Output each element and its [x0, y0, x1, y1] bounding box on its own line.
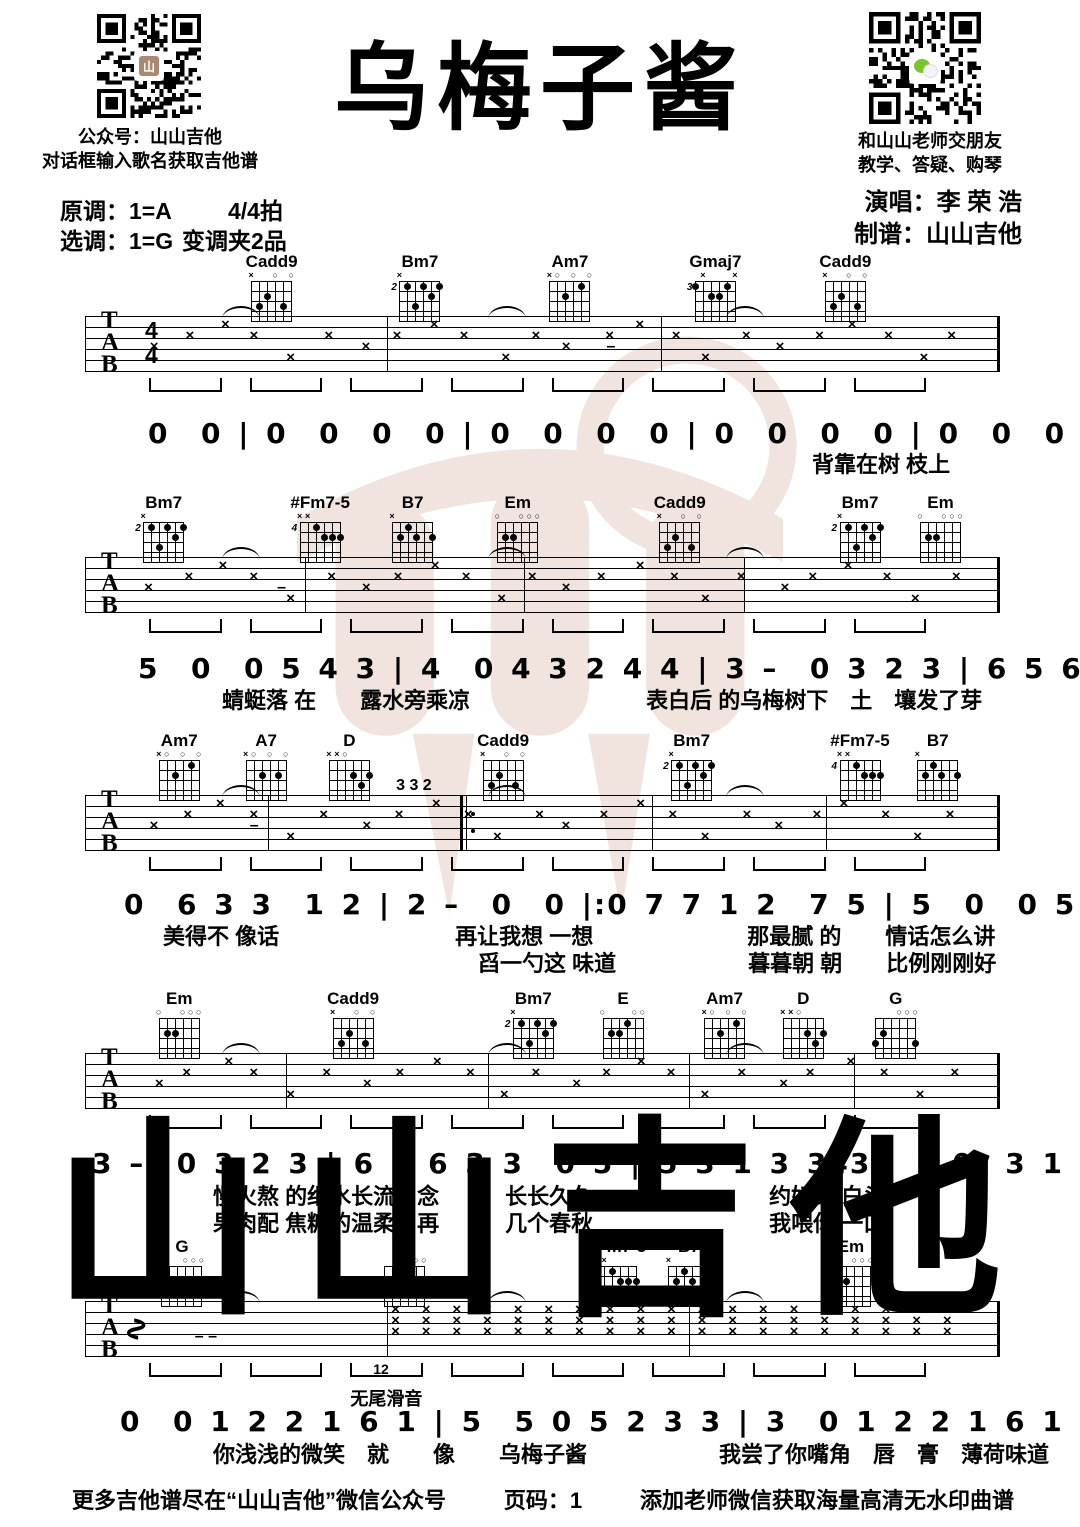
barline	[744, 557, 745, 613]
chord-diagram: Em○○○○	[488, 495, 548, 563]
tab-clef-letters: TAB	[101, 311, 119, 375]
finger-dot	[164, 1030, 171, 1037]
chord-name: Bm7	[390, 254, 450, 270]
finger-dot	[337, 534, 344, 541]
barline	[652, 795, 653, 851]
beam-group	[552, 1115, 625, 1129]
finger-dot	[912, 1040, 919, 1047]
string-marker: ○	[794, 1008, 804, 1017]
string-marker: ○	[552, 271, 562, 280]
chord-name: D	[773, 991, 833, 1007]
finger-dot	[716, 293, 723, 300]
footer-page-number: 页码：1	[504, 1483, 582, 1515]
chord-grid: ×2	[840, 522, 881, 563]
tab-x-note: ×	[514, 1328, 523, 1336]
chord-grid: ××○	[783, 1018, 824, 1059]
chord-name: Em	[911, 495, 971, 511]
chord-diagram: B7×	[659, 1239, 719, 1307]
tab-x-note: ×	[806, 1069, 815, 1077]
tab-x-note: ×	[561, 822, 570, 830]
chord-name: Cadd9	[242, 254, 302, 270]
staff-line	[85, 338, 1000, 339]
finger-dot	[429, 534, 436, 541]
tab-x-note: ×	[912, 1328, 921, 1336]
chord-diagram: B7×	[908, 733, 968, 801]
tab-x-note: ×	[947, 332, 956, 340]
chord-grid: ×○○	[483, 760, 524, 801]
finger-dot	[172, 772, 179, 779]
meta-original-key: 原调：1=A	[60, 192, 172, 226]
tab-x-note: ×	[668, 811, 677, 819]
finger-dot	[861, 524, 868, 531]
tab-staff: TAB××××××××××××××××××××××××	[85, 1053, 1000, 1108]
meta-capo: 变调夹2品	[182, 222, 287, 256]
chord-diagram: G○○○	[866, 991, 926, 1059]
tab-x-note: ×	[780, 584, 789, 592]
string-marker: ○	[678, 512, 688, 521]
annotation: –	[607, 338, 616, 356]
string-marker: ○	[638, 1008, 648, 1017]
beam-group	[854, 619, 927, 633]
tab-x-note: ×	[393, 332, 402, 340]
tab-x-note: ×	[249, 332, 258, 340]
chord-name: Am7	[695, 991, 755, 1007]
beam-group	[350, 619, 423, 633]
finger-dot	[705, 1278, 712, 1285]
beam-group	[652, 857, 725, 871]
tab-x-note: ×	[464, 811, 473, 819]
staff-line	[85, 371, 1000, 372]
tab-staff: TAB××××××××××××××××××××××××	[85, 795, 1000, 850]
string-marker: ×	[387, 512, 397, 521]
chord-diagram: Am7×○○○	[540, 254, 600, 322]
string-marker: ×	[912, 750, 922, 759]
string-marker: ×	[666, 750, 676, 759]
tab-x-note: ×	[532, 1069, 541, 1077]
staff-line	[85, 850, 1000, 851]
chord-diagram: Cadd9×○○	[473, 733, 533, 801]
melody-numbers-line: 0 0 | 0 0 0 0 | 0 0 0 0 | 0 0 0 0 | 0 0 …	[148, 420, 1080, 448]
string-marker: ○	[194, 1008, 204, 1017]
string-marker: ○	[502, 750, 512, 759]
chord-diagram: D××○	[773, 991, 833, 1059]
beam-group	[149, 1363, 222, 1377]
chord-diagram: Cadd9×○○	[242, 254, 302, 322]
tab-x-note: ×	[327, 573, 336, 581]
staff-line	[85, 1345, 1000, 1346]
staff-line	[85, 1097, 1000, 1098]
finger-dot	[869, 772, 876, 779]
chord-name: B7	[908, 733, 968, 749]
chord-grid: ×2	[513, 1018, 554, 1059]
string-marker: ○	[249, 750, 259, 759]
meta-play-key: 选调：1=G	[60, 222, 173, 256]
qr-right-caption-2: 教学、答疑、购琴	[820, 154, 1040, 176]
finger-dot	[861, 772, 868, 779]
string-marker: ○	[568, 271, 578, 280]
tab-x-note: ×	[946, 811, 955, 819]
base-fret-label: 2	[663, 761, 669, 772]
tab-x-note: ×	[562, 343, 571, 351]
tab-x-note: ×	[880, 1069, 889, 1077]
beam-group	[753, 1115, 826, 1129]
tab-clef-letters: TAB	[101, 790, 119, 854]
chord-diagram: Bm7×2	[134, 495, 194, 563]
chord-grid: ×2	[671, 760, 712, 801]
lyrics-line: 慢火熬 的细水长流 念 长长久久 约好到 白头	[213, 1186, 885, 1208]
chord-grid: ×○○	[333, 1018, 374, 1059]
string-marker: ×	[599, 1256, 609, 1265]
tab-x-note: ×	[182, 1069, 191, 1077]
finger-dot	[346, 1030, 353, 1037]
tab-clef-letters: TAB	[101, 1048, 119, 1112]
tab-x-note: ×	[737, 1069, 746, 1077]
tab-x-note: ×	[562, 584, 571, 592]
tab-x-note: ×	[636, 1328, 645, 1336]
tab-x-note: ×	[737, 573, 746, 581]
finger-dot	[830, 303, 837, 310]
string-marker: ○	[419, 1256, 429, 1265]
chord-diagram: Cadd9×○○	[650, 495, 710, 563]
footer-left-text: 更多吉他谱尽在“山山吉他”微信公众号	[72, 1483, 446, 1515]
tab-x-note: ×	[575, 1328, 584, 1336]
string-marker: ○	[286, 271, 296, 280]
staff-line	[85, 1108, 1000, 1109]
tab-x-note: ×	[698, 1328, 707, 1336]
tab-x-note: ×	[466, 1069, 475, 1077]
string-marker: ○	[694, 512, 704, 521]
barline	[85, 316, 86, 372]
chord-grid: ○○○○	[920, 522, 961, 563]
finger-dot	[954, 772, 961, 779]
lyrics-line: 背靠在树 枝上	[812, 454, 950, 476]
staff-line	[85, 1064, 1000, 1065]
staff-line	[85, 828, 1000, 829]
finger-dot	[512, 782, 519, 789]
chord-grid: ×	[668, 1266, 709, 1307]
tab-x-note: ×	[774, 822, 783, 830]
annotation: 无尾滑音	[350, 1385, 422, 1411]
string-marker: ○	[598, 1008, 608, 1017]
melody-numbers-line: 0 6 3 3 1 2 | 2 – 0 0 |:0 7 7 1 2 7 5 | …	[124, 891, 1080, 919]
beam-group	[753, 1363, 826, 1377]
chord-name: G	[866, 991, 926, 1007]
barline	[268, 795, 269, 851]
finger-dot	[608, 1030, 615, 1037]
finger-dot	[812, 1040, 819, 1047]
beam-group	[250, 1363, 323, 1377]
finger-dot	[275, 772, 282, 779]
tab-x-note: ×	[432, 800, 441, 808]
string-marker: ○	[707, 1008, 717, 1017]
beam-group	[250, 1115, 323, 1129]
tab-x-note: ×	[483, 1328, 492, 1336]
tab-x-note: ×	[743, 811, 752, 819]
chord-grid: ○○○○	[159, 1018, 200, 1059]
beam-group	[753, 378, 826, 392]
staff-line	[85, 579, 1000, 580]
string-marker: ○	[865, 1256, 875, 1265]
string-marker: ○	[154, 1008, 164, 1017]
finger-dot	[389, 1278, 396, 1285]
chord-grid: ×○○	[251, 281, 292, 322]
tab-x-note: ×	[452, 1328, 461, 1336]
finger-dot	[198, 1288, 205, 1295]
tab-x-note: ×	[249, 573, 258, 581]
tab-x-note: ×	[882, 1328, 891, 1336]
chord-name: B7	[383, 495, 443, 511]
tab-x-note: ×	[362, 822, 371, 830]
staff-line	[85, 349, 1000, 350]
tab-x-note: ×	[637, 1058, 646, 1066]
barline	[305, 557, 306, 613]
chord-diagram: Cadd9×○○	[323, 991, 383, 1059]
tab-x-note: ×	[535, 811, 544, 819]
base-fret-label: 4	[292, 523, 298, 534]
tab-x-note: ×	[916, 1091, 925, 1099]
tab-x-note: ×	[606, 1328, 615, 1336]
chord-name: Em	[488, 495, 548, 511]
beam-group	[854, 378, 927, 392]
finger-dot	[338, 1040, 345, 1047]
tab-x-note: ×	[221, 321, 230, 329]
string-marker: ○	[584, 271, 594, 280]
tab-x-note: ×	[820, 1328, 829, 1336]
barline	[85, 795, 86, 851]
chord-diagram: G○○○	[374, 1239, 434, 1307]
lyrics-line: 果肉配 焦糖的温柔 再 几个春秋 我喂你 一口	[213, 1213, 885, 1235]
finger-dot	[925, 534, 932, 541]
tab-x-note: ×	[701, 1091, 710, 1099]
tab-x-note: ×	[422, 1328, 431, 1336]
tab-x-note: ×	[391, 1328, 400, 1336]
string-marker: ○	[194, 750, 204, 759]
tab-x-note: ×	[224, 1058, 233, 1066]
tab-x-note: ×	[848, 321, 857, 329]
finger-dot	[313, 524, 320, 531]
finger-dot	[350, 772, 357, 779]
string-marker: ○	[162, 750, 172, 759]
string-marker: ○	[825, 1256, 835, 1265]
chord-grid: ××4	[840, 760, 881, 801]
finger-dot	[436, 283, 443, 290]
chord-diagram: G○○○	[152, 1239, 212, 1307]
tab-x-note: ×	[493, 833, 502, 841]
staff-line	[85, 1334, 1000, 1335]
melody-numbers-line: 0 0 1 2 2 1 6 1 | 5 5 0 5 2 3 3 | 3 0 1 …	[120, 1408, 1080, 1436]
beam-group	[250, 378, 323, 392]
chord-name: Bm7	[662, 733, 722, 749]
meta-time-signature: 4/4拍	[228, 192, 283, 226]
string-marker: ×	[654, 512, 664, 521]
beam-group	[250, 857, 323, 871]
repeat-barline-thin	[466, 795, 467, 851]
chord-name: E	[593, 991, 653, 1007]
tab-x-note: ×	[544, 1328, 553, 1336]
finger-dot	[724, 283, 731, 290]
tab-staff: TAB××××××××××××××××××××××××	[85, 557, 1000, 612]
base-fret-label: 2	[135, 523, 141, 534]
chord-diagram: Em○○○○	[911, 495, 971, 563]
footer-right-text: 添加老师微信获取海量高清无水印曲谱	[640, 1483, 1014, 1515]
tab-x-note: ×	[846, 1058, 855, 1066]
chord-grid: ○○○	[161, 1266, 202, 1307]
beam-group	[451, 1363, 524, 1377]
chord-grid: ○○○○	[497, 522, 538, 563]
tab-x-note: ×	[362, 584, 371, 592]
beam-group	[652, 378, 725, 392]
melody-numbers-line: 5 0 0 5 4 3 | 4 0 4 3 2 4 4 | 3 – 0 3 2 …	[138, 655, 1080, 683]
chord-name: Em	[149, 991, 209, 1007]
string-marker: ×	[730, 271, 740, 280]
tab-x-note: ×	[884, 332, 893, 340]
chord-name: #Fm7-5	[290, 495, 350, 511]
tab-x-note: ×	[701, 833, 710, 841]
slur-arc	[222, 1043, 260, 1056]
chord-name: G	[152, 1239, 212, 1255]
string-marker: ○	[723, 1008, 733, 1017]
beam-group	[350, 1115, 423, 1129]
chord-diagram: Am7×○○○	[695, 991, 755, 1059]
staff-line	[85, 360, 1000, 361]
base-fret-label: 4	[832, 761, 838, 772]
qr-left-caption-2: 对话框输入歌名获取吉他谱	[30, 150, 270, 172]
tab-x-note: ×	[286, 354, 295, 362]
footer: 更多吉他谱尽在“山山吉他”微信公众号 页码：1 添加老师微信获取海量高清无水印曲…	[72, 1483, 1014, 1515]
string-marker: ×	[328, 1008, 338, 1017]
tab-x-note: ×	[501, 354, 510, 362]
tab-x-note: ×	[430, 321, 439, 329]
chord-diagram: #Fm7-5××4	[290, 495, 350, 563]
chord-grid: ××4	[596, 1266, 637, 1307]
string-marker: ×	[478, 750, 488, 759]
staff-line	[85, 612, 1000, 613]
tab-x-note: ×	[216, 800, 225, 808]
string-marker: ○	[265, 750, 275, 759]
tab-x-note: ×	[670, 573, 679, 581]
finger-dot	[853, 762, 860, 769]
annotation: –	[277, 579, 286, 597]
tab-x-note: ×	[144, 584, 153, 592]
string-marker: ○	[518, 750, 528, 759]
finger-dot	[381, 1288, 388, 1295]
finger-dot	[259, 772, 266, 779]
chord-diagram: #Fm7-5××4	[587, 1239, 647, 1307]
finger-dot	[616, 1030, 623, 1037]
string-marker: ○	[492, 512, 502, 521]
string-marker: ○	[739, 1008, 749, 1017]
staff-line	[85, 1312, 1000, 1313]
meta-singer: 演唱：李 荣 浩	[865, 182, 1022, 217]
tab-x-note: ×	[815, 332, 824, 340]
barline	[997, 316, 1000, 372]
chord-name: Cadd9	[650, 495, 710, 511]
chord-name: B7	[659, 1239, 719, 1255]
tab-x-note: ×	[394, 573, 403, 581]
tab-x-note: ×	[911, 595, 920, 603]
tab-x-note: ×	[322, 1069, 331, 1077]
staff-line	[85, 1356, 1000, 1357]
staff-line	[85, 590, 1000, 591]
finger-dot	[708, 293, 715, 300]
tab-x-note: ×	[597, 573, 606, 581]
beam-group	[451, 378, 524, 392]
tab-x-note: ×	[602, 1069, 611, 1077]
tab-x-note: ×	[433, 1058, 442, 1066]
annotation: –	[250, 817, 259, 835]
barline	[661, 316, 662, 372]
barline	[997, 1053, 1000, 1109]
tab-x-note: ×	[881, 811, 890, 819]
beam-group	[149, 857, 222, 871]
string-marker: ×	[138, 512, 148, 521]
lyrics-line: 美得不 像话 再让我想 一想 那最腻 的 情话怎么讲	[163, 926, 995, 948]
arpeggio-squiggle: ∿	[116, 1315, 156, 1344]
tab-x-note: ×	[943, 1328, 952, 1336]
tab-x-note: ×	[920, 354, 929, 362]
chord-grid: ××○	[329, 760, 370, 801]
finger-dot	[405, 524, 412, 531]
finger-dot	[838, 293, 845, 300]
tab-x-note: ×	[790, 1328, 799, 1336]
annotation: – –	[195, 1328, 217, 1346]
staff-line	[85, 1075, 1000, 1076]
string-marker: ○	[178, 750, 188, 759]
tab-x-note: ×	[155, 1080, 164, 1088]
meta-tabber: 制谱：山山吉他	[854, 214, 1022, 249]
string-marker: ×	[394, 271, 404, 280]
chord-grid: ○○○	[384, 1266, 425, 1307]
string-marker: ○	[352, 1008, 362, 1017]
finger-dot	[854, 303, 861, 310]
tab-x-note: ×	[286, 833, 295, 841]
tab-x-note: ×	[460, 332, 469, 340]
string-marker: ×	[843, 750, 853, 759]
chord-diagram: Gmaj7××3	[685, 254, 745, 322]
tab-x-note: ×	[319, 811, 328, 819]
barline	[85, 1301, 86, 1357]
repeat-barline	[460, 795, 463, 851]
finger-dot	[526, 1040, 533, 1047]
tab-x-note: ×	[528, 573, 537, 581]
tab-x-note: ×	[431, 562, 440, 570]
tab-x-note: ×	[701, 354, 710, 362]
tab-x-note: ×	[635, 321, 644, 329]
string-marker: ×	[698, 271, 708, 280]
beam-group	[552, 619, 625, 633]
tab-x-note: ×	[286, 595, 295, 603]
chord-grid: ××3	[695, 281, 736, 322]
lyrics-line: 舀一勺这 味道 暮暮朝 朝 比例刚刚好	[478, 953, 996, 975]
chord-name: Bm7	[830, 495, 890, 511]
barline	[488, 1053, 489, 1109]
chord-name: Cadd9	[473, 733, 533, 749]
chord-grid: ○○○	[875, 1018, 916, 1059]
finger-dot	[413, 534, 420, 541]
tab-x-note: ×	[701, 595, 710, 603]
tab-x-note: ×	[249, 1069, 258, 1077]
staff-line	[85, 1086, 1000, 1087]
chord-name: D	[319, 733, 379, 749]
annotation: 3 3 2	[396, 777, 432, 795]
chord-name: #Fm7-5	[587, 1239, 647, 1255]
finger-dot	[180, 524, 187, 531]
tab-x-note: ×	[286, 1091, 295, 1099]
lyrics-line: 蜻蜓落 在 露水旁乘凉 表白后 的乌梅树下 土 壤发了芽	[222, 690, 982, 712]
string-marker: ×	[303, 512, 313, 521]
finger-dot	[172, 1030, 179, 1037]
annotation: 12	[373, 1361, 389, 1377]
